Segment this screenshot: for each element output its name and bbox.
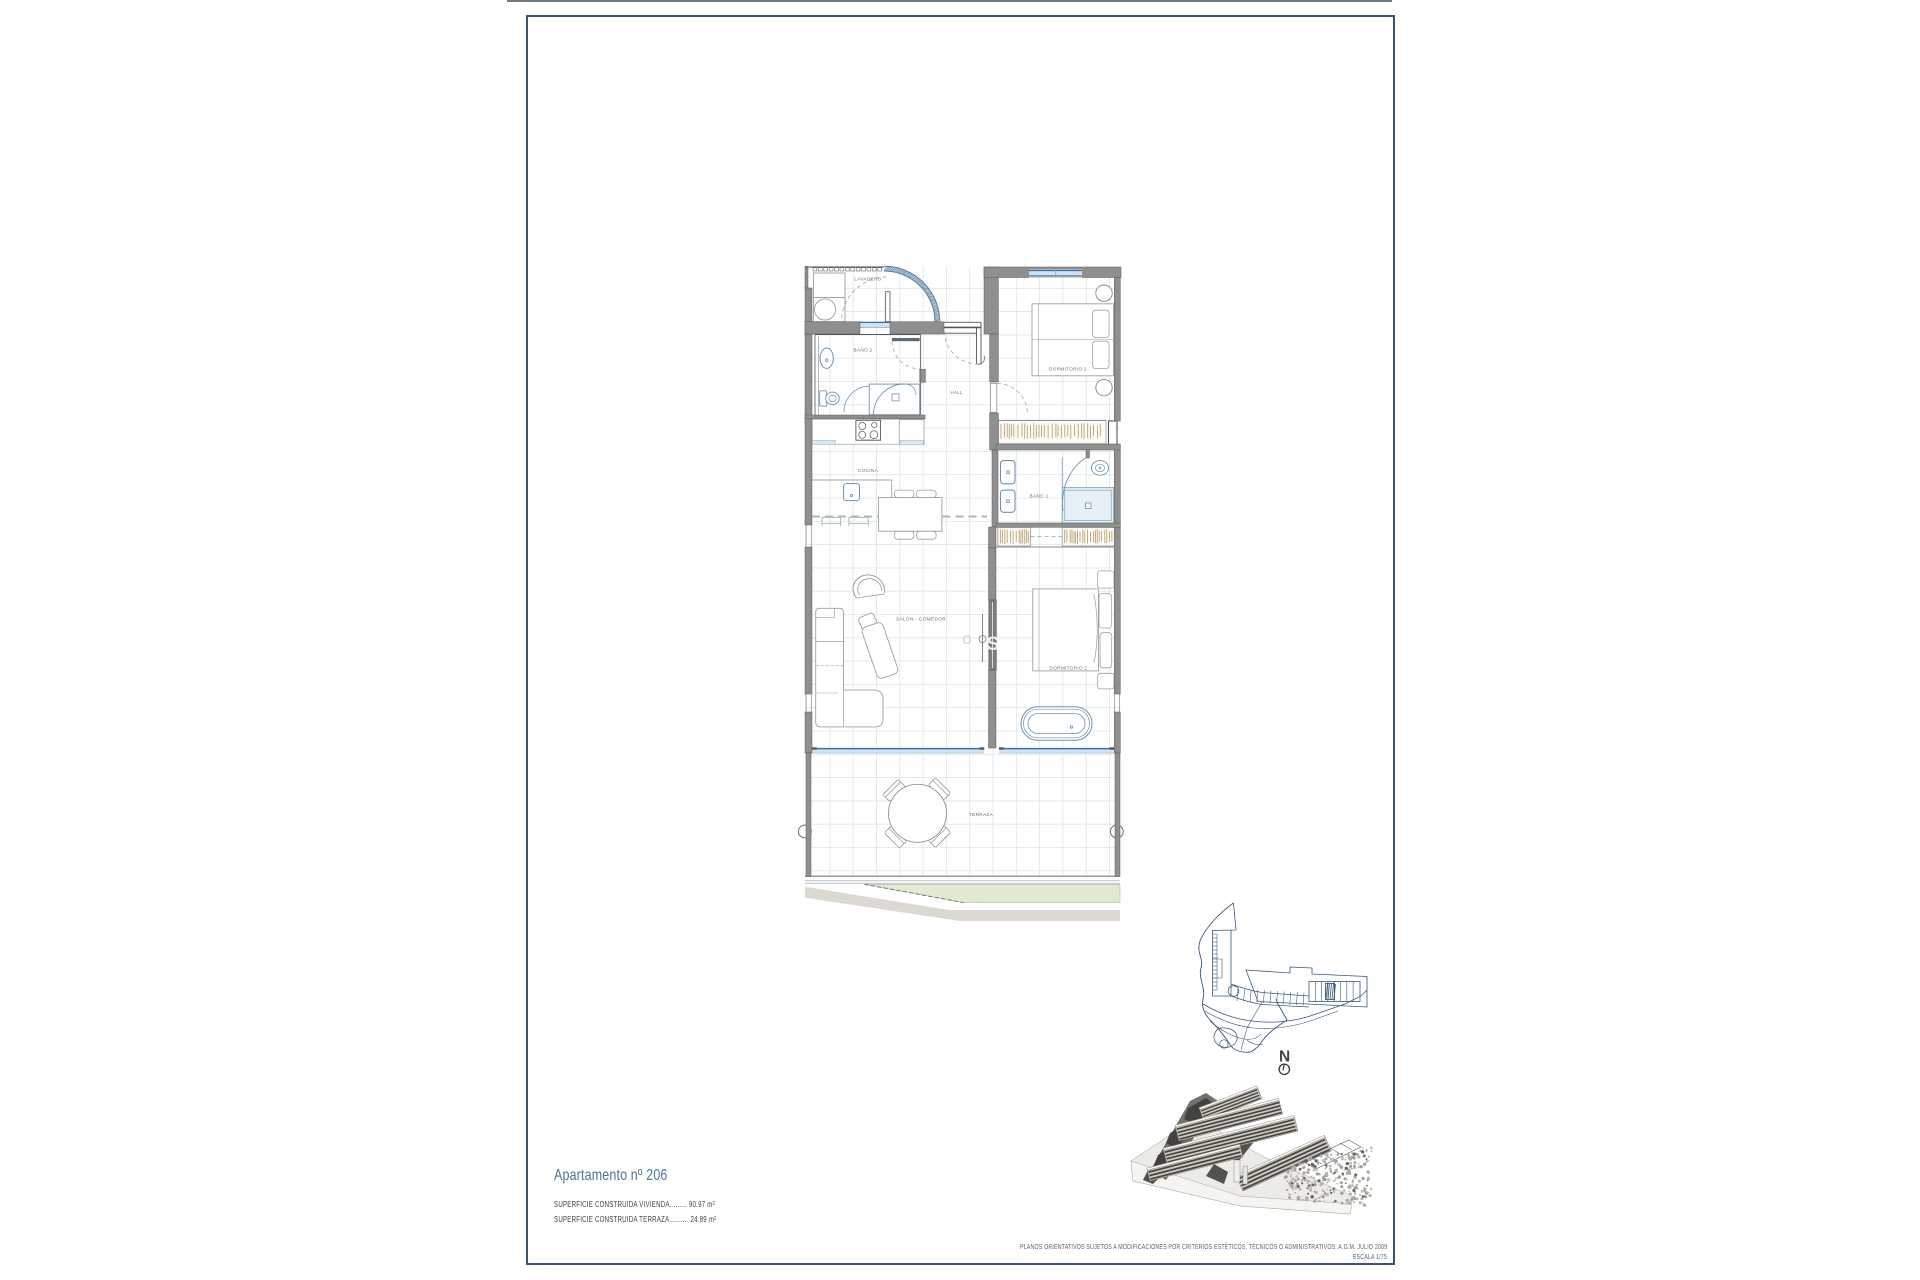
- svg-text:BAÑO 2: BAÑO 2: [854, 347, 873, 353]
- svg-text:DORMITORIO 1: DORMITORIO 1: [1050, 666, 1088, 671]
- svg-text:COCINA: COCINA: [858, 468, 879, 473]
- svg-text:HALL: HALL: [950, 390, 962, 395]
- svg-text:N: N: [1279, 1049, 1291, 1066]
- svg-text:DORMITORIO 2: DORMITORIO 2: [1049, 367, 1087, 372]
- svg-text:o: o: [962, 629, 971, 648]
- svg-text:S: S: [987, 634, 1000, 655]
- svg-text:LAVADERO: LAVADERO: [854, 277, 881, 282]
- svg-text:BAÑO 1: BAÑO 1: [1030, 493, 1049, 499]
- svg-text:SALÓN - COMEDOR: SALÓN - COMEDOR: [896, 616, 946, 623]
- svg-text:TERRAZA: TERRAZA: [969, 812, 994, 817]
